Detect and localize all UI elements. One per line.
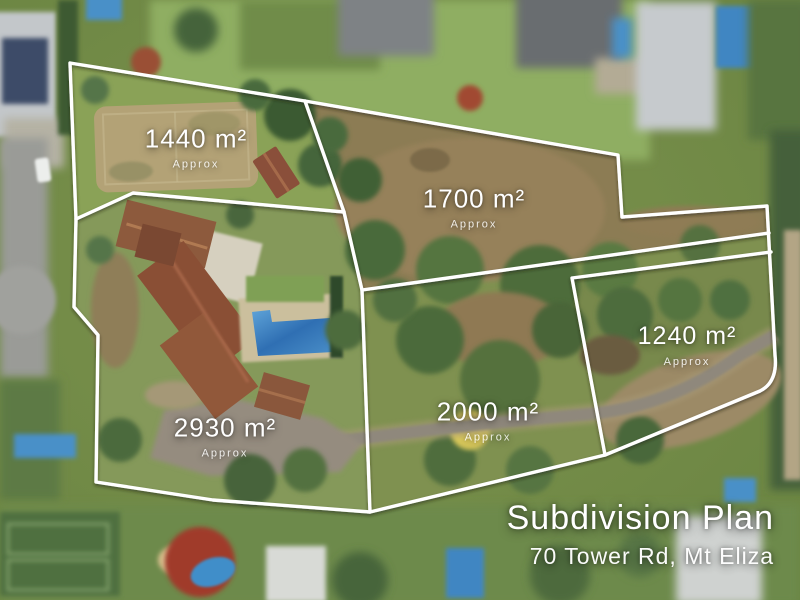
plan-title: Subdivision Plan <box>507 500 774 537</box>
plan-address: 70 Tower Rd, Mt Eliza <box>507 543 774 570</box>
subdivision-plan-image: 1440 m² Approx 1700 m² Approx 2930 m² Ap… <box>0 0 800 600</box>
old-tennis-court <box>94 101 259 193</box>
title-block: Subdivision Plan 70 Tower Rd, Mt Eliza <box>507 500 774 570</box>
